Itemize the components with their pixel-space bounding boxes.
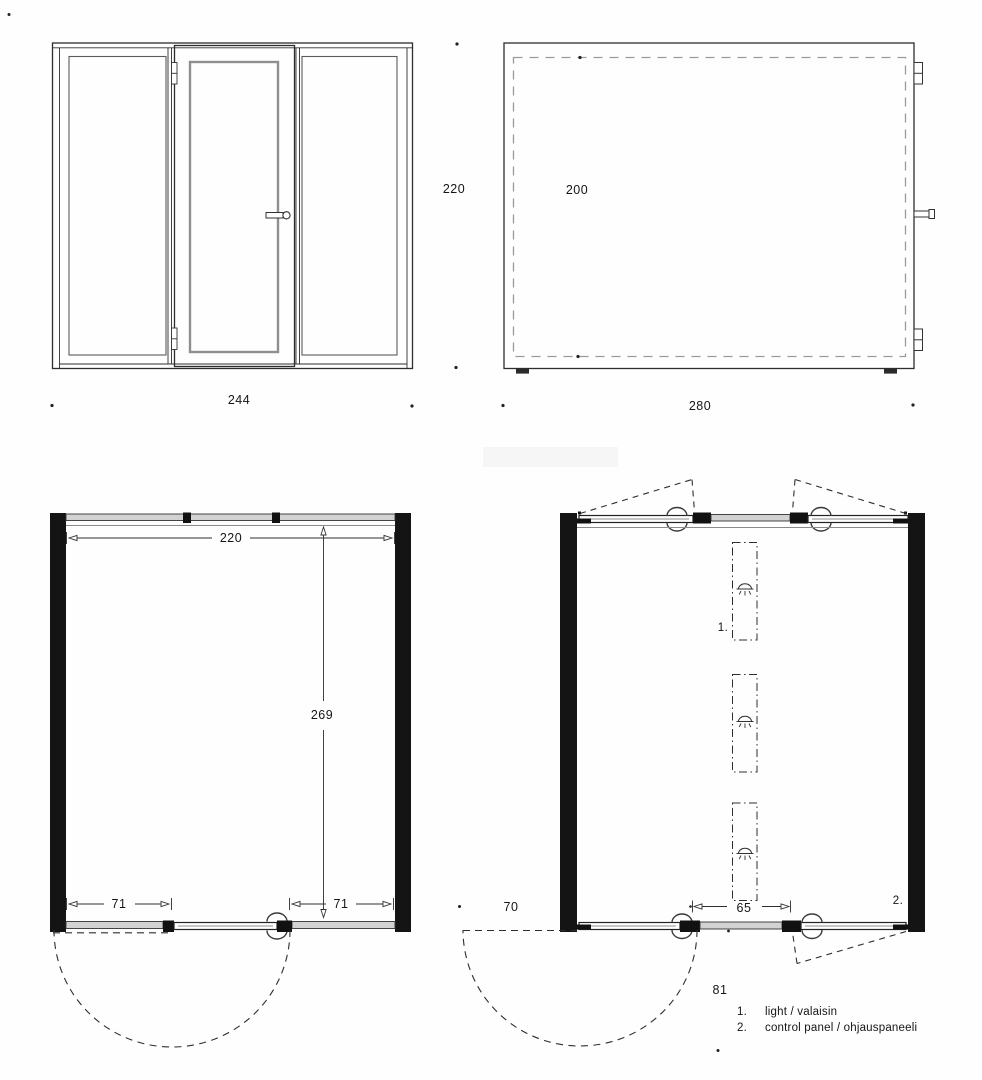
drawing-sheet: 244 220 200 280 220 269 71 71 70 65 81 1… [0, 0, 982, 1080]
top-left-door-swing [580, 480, 695, 514]
downlight-icon [737, 716, 754, 728]
clearance-dashed-outline [514, 58, 906, 357]
downlight-icon [737, 584, 754, 596]
panel-outline [504, 43, 914, 369]
front-elevation-drawing [53, 43, 413, 369]
door-handle-icon [914, 210, 935, 219]
dim-label-plan-depth: 269 [311, 708, 333, 722]
left-glass-panel [69, 57, 166, 356]
door-hinge-block [163, 921, 174, 933]
top-right-door-swing [793, 480, 907, 514]
door-swing-arc [54, 930, 290, 1047]
floor-plan-drawing [50, 513, 411, 1048]
legend-item-label: light / valaisin [765, 1006, 837, 1018]
registration-dots [8, 13, 915, 1052]
light-track [733, 803, 758, 901]
bottom-glass-left [66, 922, 163, 929]
door-post-block [790, 513, 808, 524]
side-elevation-drawing [504, 43, 935, 374]
dim-label-left-panel: 71 [112, 897, 127, 911]
dim-plan-depth [321, 527, 326, 918]
right-wall-post [908, 513, 925, 932]
downlight-icon [737, 848, 754, 860]
foot-icon [884, 369, 897, 374]
foot-icon [516, 369, 529, 374]
ref-label-panel: 2. [893, 895, 904, 907]
left-wall-post [560, 513, 577, 932]
ceiling-plan-drawing [463, 480, 925, 1047]
bottom-left-door-swing-arc [463, 930, 697, 1046]
door-handle-icon [266, 212, 290, 219]
bottom-glass-right [292, 922, 395, 929]
bottom-center-glass [700, 922, 782, 929]
mullion [272, 513, 280, 524]
door-post-block [782, 921, 801, 933]
right-glass-panel [302, 57, 397, 356]
scan-artifact [483, 447, 618, 467]
legend-item-label: control panel / ohjauspaneeli [765, 1022, 917, 1034]
door-post-block [693, 513, 711, 524]
right-wall-post [395, 513, 411, 932]
door-glass [190, 62, 278, 352]
frame-outline [53, 43, 413, 369]
bottom-right-door-swing [793, 932, 907, 964]
dim-label-side-width: 280 [689, 399, 711, 413]
top-glass-wall [66, 514, 395, 521]
ref-label-light: 1. [718, 622, 729, 634]
dim-label-ceiling-center: 65 [737, 901, 752, 915]
dim-label-right-panel: 71 [334, 897, 349, 911]
door-leaf [175, 46, 295, 367]
left-wall-post [50, 513, 66, 932]
top-center-glass [711, 515, 790, 522]
hinge-icon [914, 63, 923, 351]
dim-label-ceiling-left: 70 [504, 900, 519, 914]
light-track [733, 675, 758, 773]
dim-label-height: 220 [443, 182, 465, 196]
dim-label-ceiling-door: 81 [713, 983, 728, 997]
dim-label-plan-width: 220 [220, 531, 242, 545]
legend-item-number: 1. [737, 1006, 747, 1018]
legend-item-number: 2. [737, 1022, 747, 1034]
mullion [183, 513, 191, 524]
dim-label-side-inner: 200 [566, 183, 588, 197]
dim-label-front-width: 244 [228, 393, 250, 407]
linework [0, 0, 982, 1080]
downlight-icons [737, 584, 754, 860]
